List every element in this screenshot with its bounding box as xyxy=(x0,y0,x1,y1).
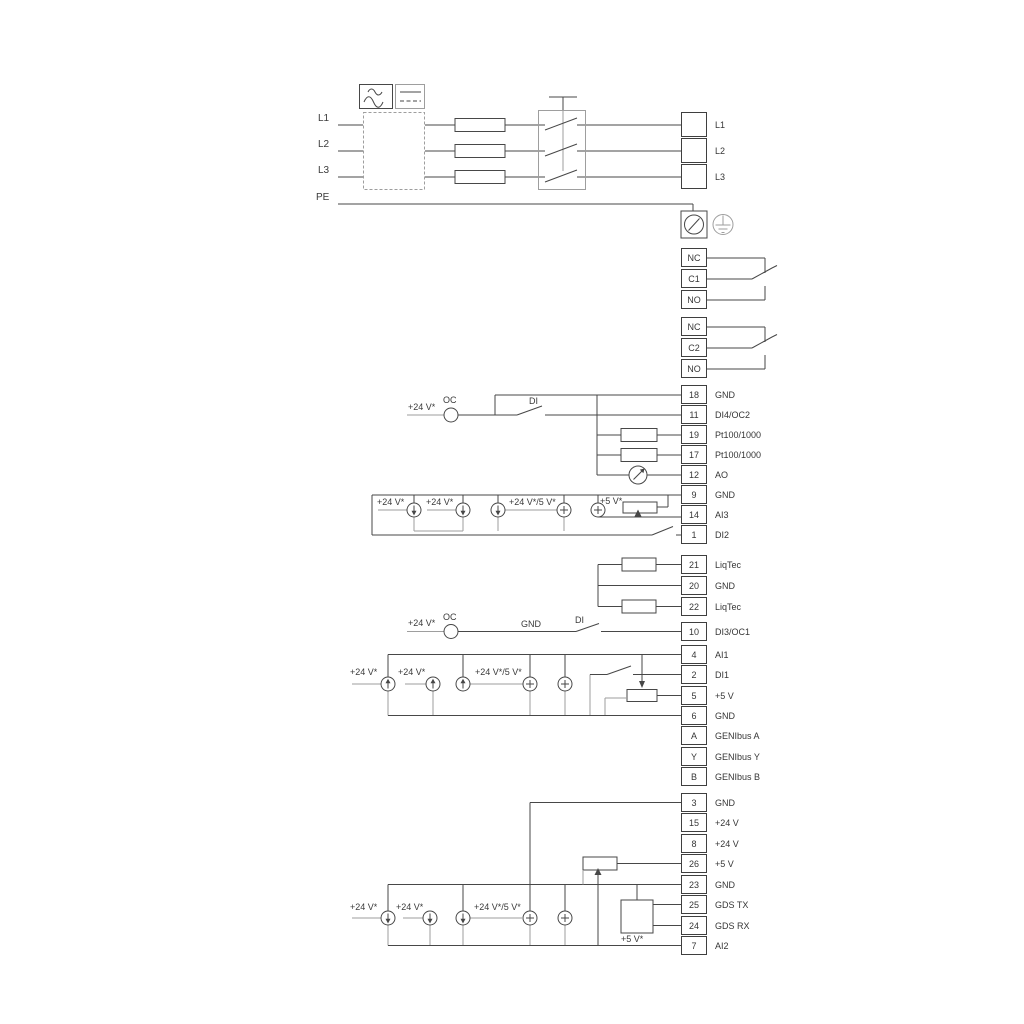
terminal-row: 2DI1 xyxy=(681,665,729,684)
terminal-number: 8 xyxy=(691,839,696,849)
terminal-number: 12 xyxy=(689,470,699,480)
terminal-number: 9 xyxy=(691,490,696,500)
terminal-cell: 14 xyxy=(681,505,707,524)
terminal-label: LiqTec xyxy=(715,602,741,612)
input-label-l2: L2 xyxy=(318,140,329,150)
terminal-label: +5 V xyxy=(715,691,734,701)
terminal-cell: NC xyxy=(681,317,707,336)
terminal-number: A xyxy=(691,731,697,741)
terminal-label: GND xyxy=(715,490,735,500)
terminal-row: 12AO xyxy=(681,465,728,484)
supply-label: +24 V* xyxy=(408,618,435,628)
terminal-label: Pt100/1000 xyxy=(715,450,761,460)
supply-label: +24 V* xyxy=(350,902,377,912)
current-sink-icon xyxy=(456,911,470,925)
terminal-cell: 24 xyxy=(681,916,707,935)
gnd-label: GND xyxy=(521,619,541,629)
terminal-number: 3 xyxy=(691,798,696,808)
terminal-cell: 8 xyxy=(681,834,707,853)
terminal-cell: 21 xyxy=(681,555,707,574)
terminal-row: 24GDS RX xyxy=(681,916,750,935)
terminal-number: C2 xyxy=(688,343,700,353)
terminal-number: Y xyxy=(691,752,697,762)
resistor-pt100-1 xyxy=(621,429,657,442)
terminal-number: 15 xyxy=(689,818,699,828)
terminal-label: GDS TX xyxy=(715,900,748,910)
terminal-label: AI1 xyxy=(715,650,729,660)
terminal-label: GENIbus Y xyxy=(715,752,760,762)
terminal-label: DI3/OC1 xyxy=(715,627,750,637)
terminal-label: DI2 xyxy=(715,530,729,540)
terminal-row: 21LiqTec xyxy=(681,555,741,574)
liqtec-wiring xyxy=(598,558,681,613)
terminal-number: 24 xyxy=(689,921,699,931)
terminal-label: GENIbus A xyxy=(715,731,760,741)
current-sink-icon xyxy=(491,503,505,517)
io1-wiring xyxy=(372,395,681,535)
supply-label: +24 V* xyxy=(398,667,425,677)
relay2-contact xyxy=(707,327,777,369)
supply-label: +5 V* xyxy=(621,934,643,944)
terminal-cell: Y xyxy=(681,747,707,766)
terminal-number: 21 xyxy=(689,560,699,570)
voltage-source-icon xyxy=(523,677,537,691)
supply-label: +5 V* xyxy=(600,496,622,506)
terminal-row: 19Pt100/1000 xyxy=(681,425,761,444)
terminal-label: L2 xyxy=(715,146,725,156)
terminal-number: NC xyxy=(688,322,701,332)
di3-wiring xyxy=(407,624,681,639)
terminal-row: L1 xyxy=(681,112,725,137)
terminal-row: NO xyxy=(681,290,707,309)
io3-wiring xyxy=(352,803,681,946)
terminal-number: 25 xyxy=(689,900,699,910)
terminal-row: 15+24 V xyxy=(681,813,739,832)
terminal-cell: 17 xyxy=(681,445,707,464)
terminal-cell: A xyxy=(681,726,707,745)
relay1-contact xyxy=(707,258,777,300)
resistor-pt100-2 xyxy=(621,449,657,462)
pe-terminal-icon xyxy=(681,211,707,238)
terminal-number: 10 xyxy=(689,627,699,637)
dc-symbol-icon xyxy=(396,85,425,109)
terminal-cell: 1 xyxy=(681,525,707,544)
supply-label: +24 V*/5 V* xyxy=(474,902,521,912)
potentiometer-ai1 xyxy=(627,690,657,702)
current-sink-icon xyxy=(381,911,395,925)
terminal-row: C1 xyxy=(681,269,707,288)
wiring-diagram: L1 L2 L3 PE L1 L2 L3 NC C1 NO NC C2 NO 1… xyxy=(0,0,1024,1024)
terminal-number: 19 xyxy=(689,430,699,440)
current-sink-icon xyxy=(423,911,437,925)
supply-label: +24 V* xyxy=(377,497,404,507)
gds-sensor-box xyxy=(621,900,653,933)
terminal-label: DI1 xyxy=(715,670,729,680)
di-label: DI xyxy=(529,396,538,406)
terminal-cell xyxy=(681,164,707,189)
terminal-row: C2 xyxy=(681,338,707,357)
terminal-cell: 15 xyxy=(681,813,707,832)
input-label-pe: PE xyxy=(316,193,329,203)
terminal-cell: 6 xyxy=(681,706,707,725)
terminal-number: 23 xyxy=(689,880,699,890)
terminal-row: AGENIbus A xyxy=(681,726,760,745)
terminal-row: 8+24 V xyxy=(681,834,739,853)
terminal-number: 11 xyxy=(689,410,698,420)
terminal-number: 26 xyxy=(689,859,699,869)
terminal-label: L1 xyxy=(715,120,725,130)
terminal-label: GDS RX xyxy=(715,921,750,931)
terminal-label: AO xyxy=(715,470,728,480)
terminal-cell: 18 xyxy=(681,385,707,404)
terminal-row: 1DI2 xyxy=(681,525,729,544)
liqtec-sensor-2 xyxy=(622,600,656,613)
terminal-row: L3 xyxy=(681,164,725,189)
terminal-cell: C2 xyxy=(681,338,707,357)
terminal-row: 14AI3 xyxy=(681,505,729,524)
terminal-row: 7AI2 xyxy=(681,936,729,955)
terminal-label: +5 V xyxy=(715,859,734,869)
terminal-number: 5 xyxy=(691,691,696,701)
terminal-cell: 2 xyxy=(681,665,707,684)
terminal-number: 2 xyxy=(691,670,696,680)
terminal-number: 17 xyxy=(689,450,699,460)
current-source-icon xyxy=(456,677,470,691)
terminal-number: 14 xyxy=(689,510,699,520)
terminal-label: Pt100/1000 xyxy=(715,430,761,440)
terminal-cell xyxy=(681,138,707,163)
terminal-row: 10DI3/OC1 xyxy=(681,622,750,641)
terminal-cell: 5 xyxy=(681,686,707,705)
supply-label: +24 V*/5 V* xyxy=(475,667,522,677)
terminal-cell: 12 xyxy=(681,465,707,484)
terminal-number: NO xyxy=(687,364,701,374)
terminal-cell: 26 xyxy=(681,854,707,873)
terminal-label: DI4/OC2 xyxy=(715,410,750,420)
terminal-row: 26+5 V xyxy=(681,854,734,873)
terminal-number: 18 xyxy=(689,390,699,400)
terminal-label: LiqTec xyxy=(715,560,741,570)
terminal-row: YGENIbus Y xyxy=(681,747,760,766)
terminal-cell: 23 xyxy=(681,875,707,894)
oc-circle-icon xyxy=(444,625,458,639)
current-source-icon xyxy=(381,677,395,691)
analog-output-meter-icon xyxy=(629,466,647,484)
terminal-row: 25GDS TX xyxy=(681,895,748,914)
terminal-cell: 19 xyxy=(681,425,707,444)
supply-label: +24 V* xyxy=(396,902,423,912)
liqtec-sensor-1 xyxy=(622,558,656,571)
terminal-row: 5+5 V xyxy=(681,686,734,705)
voltage-source-icon xyxy=(557,503,571,517)
terminal-label: +24 V xyxy=(715,839,739,849)
terminal-number: B xyxy=(691,772,697,782)
terminal-cell: NC xyxy=(681,248,707,267)
terminal-row: 4AI1 xyxy=(681,645,729,664)
terminal-number: NO xyxy=(687,295,701,305)
terminal-number: C1 xyxy=(688,274,700,284)
wiring-lines xyxy=(0,0,1024,1024)
terminal-label: GND xyxy=(715,711,735,721)
terminal-row: 3GND xyxy=(681,793,735,812)
input-label-l1: L1 xyxy=(318,114,329,124)
terminal-row: NO xyxy=(681,359,707,378)
terminal-label: GND xyxy=(715,798,735,808)
terminal-number: 20 xyxy=(689,581,699,591)
supply-label: +24 V* xyxy=(350,667,377,677)
supply-label: +24 V*/5 V* xyxy=(509,497,556,507)
terminal-label: AI3 xyxy=(715,510,729,520)
terminal-cell xyxy=(681,112,707,137)
current-sink-icon xyxy=(407,503,421,517)
earth-ground-icon xyxy=(713,215,733,235)
oc-circle-icon xyxy=(444,408,458,422)
terminal-number: 7 xyxy=(691,941,696,951)
terminal-label: GENIbus B xyxy=(715,772,760,782)
terminal-number: 4 xyxy=(691,650,696,660)
terminal-cell: 3 xyxy=(681,793,707,812)
terminal-label: L3 xyxy=(715,172,725,182)
voltage-source-icon xyxy=(558,911,572,925)
terminal-label: GND xyxy=(715,390,735,400)
terminal-row: BGENIbus B xyxy=(681,767,760,786)
terminal-cell: 9 xyxy=(681,485,707,504)
supply-label: +24 V* xyxy=(426,497,453,507)
terminal-cell: B xyxy=(681,767,707,786)
terminal-row: 23GND xyxy=(681,875,735,894)
contactor-symbol xyxy=(539,97,586,190)
terminal-cell: 4 xyxy=(681,645,707,664)
terminal-label: +24 V xyxy=(715,818,739,828)
terminal-row: 11DI4/OC2 xyxy=(681,405,750,424)
terminal-row: L2 xyxy=(681,138,725,163)
terminal-row: 17Pt100/1000 xyxy=(681,445,761,464)
terminal-row: 9GND xyxy=(681,485,735,504)
oc-label: OC xyxy=(443,395,457,405)
terminal-number: 22 xyxy=(689,602,699,612)
oc-label: OC xyxy=(443,612,457,622)
terminal-label: GND xyxy=(715,880,735,890)
io2-wiring xyxy=(352,655,681,716)
terminal-cell: 7 xyxy=(681,936,707,955)
current-source-icon xyxy=(426,677,440,691)
terminal-cell: 25 xyxy=(681,895,707,914)
terminal-number: 1 xyxy=(691,530,696,540)
terminal-cell: NO xyxy=(681,290,707,309)
terminal-row: NC xyxy=(681,317,707,336)
potentiometer-ai3 xyxy=(623,502,657,513)
terminal-cell: NO xyxy=(681,359,707,378)
fuse-symbols xyxy=(455,119,505,184)
terminal-cell: 11 xyxy=(681,405,707,424)
voltage-source-icon xyxy=(558,677,572,691)
filter-box xyxy=(364,113,425,190)
di-label: DI xyxy=(575,615,584,625)
terminal-number: 6 xyxy=(691,711,696,721)
terminal-number: NC xyxy=(688,253,701,263)
terminal-row: NC xyxy=(681,248,707,267)
terminal-cell: 10 xyxy=(681,622,707,641)
ac-symbol-icon xyxy=(360,85,393,109)
mains-wires xyxy=(338,125,693,211)
terminal-cell: 20 xyxy=(681,576,707,595)
terminal-row: 18GND xyxy=(681,385,735,404)
supply-label: +24 V* xyxy=(408,402,435,412)
potentiometer-ai2 xyxy=(583,857,617,870)
voltage-source-icon xyxy=(523,911,537,925)
terminal-cell: 22 xyxy=(681,597,707,616)
current-sink-icon xyxy=(456,503,470,517)
terminal-cell: C1 xyxy=(681,269,707,288)
terminal-row: 22LiqTec xyxy=(681,597,741,616)
terminal-row: 20GND xyxy=(681,576,735,595)
input-label-l3: L3 xyxy=(318,166,329,176)
terminal-row: 6GND xyxy=(681,706,735,725)
terminal-label: AI2 xyxy=(715,941,729,951)
terminal-label: GND xyxy=(715,581,735,591)
